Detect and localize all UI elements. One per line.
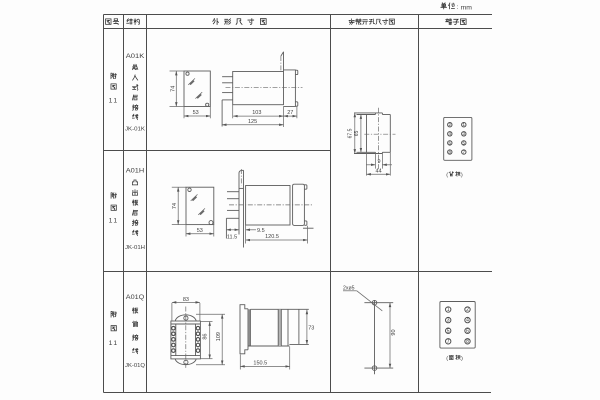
svg-text:74: 74 xyxy=(170,86,176,92)
svg-text:(: ( xyxy=(446,172,448,178)
svg-text:11: 11 xyxy=(109,218,119,225)
svg-text:150.5: 150.5 xyxy=(253,360,267,366)
svg-text:JK-01Q: JK-01Q xyxy=(125,363,146,369)
svg-text:65: 65 xyxy=(354,131,360,137)
svg-text:mm: mm xyxy=(461,4,473,11)
svg-text:7: 7 xyxy=(447,339,450,345)
svg-text:): ) xyxy=(461,356,463,362)
svg-text:53: 53 xyxy=(193,110,199,116)
svg-text:6: 6 xyxy=(466,328,469,334)
svg-text:86: 86 xyxy=(202,334,208,340)
svg-text:1: 1 xyxy=(447,307,450,313)
svg-text:JK-01K: JK-01K xyxy=(125,126,145,132)
svg-text:2: 2 xyxy=(466,307,469,313)
svg-text:44: 44 xyxy=(376,169,382,175)
svg-text:120.5: 120.5 xyxy=(265,234,279,240)
svg-text:73: 73 xyxy=(308,326,314,332)
svg-text:125: 125 xyxy=(248,119,257,125)
svg-text::: : xyxy=(457,4,459,11)
svg-text:83: 83 xyxy=(183,297,189,303)
svg-text:8: 8 xyxy=(466,339,469,345)
svg-text:11.5: 11.5 xyxy=(227,234,237,240)
svg-text:): ) xyxy=(461,172,463,178)
svg-text:9.5: 9.5 xyxy=(257,228,265,234)
svg-text:74: 74 xyxy=(172,203,178,209)
svg-text:109: 109 xyxy=(216,332,222,341)
svg-text:9: 9 xyxy=(377,159,380,165)
svg-text:67.5: 67.5 xyxy=(348,128,354,138)
svg-text:5: 5 xyxy=(447,328,450,334)
svg-text:A01Q: A01Q xyxy=(126,295,145,301)
svg-text:11: 11 xyxy=(109,340,119,347)
svg-text:11: 11 xyxy=(109,97,119,104)
svg-text:3: 3 xyxy=(447,318,450,324)
svg-text:JK-01H: JK-01H xyxy=(125,245,145,251)
svg-text:A01K: A01K xyxy=(126,54,145,60)
svg-text:90: 90 xyxy=(391,329,397,335)
svg-text:(: ( xyxy=(446,356,448,362)
svg-text:103: 103 xyxy=(252,110,261,116)
svg-text:27: 27 xyxy=(287,110,293,116)
svg-text:A01H: A01H xyxy=(126,168,145,174)
svg-text:53: 53 xyxy=(197,228,203,234)
svg-text:4: 4 xyxy=(466,318,469,324)
